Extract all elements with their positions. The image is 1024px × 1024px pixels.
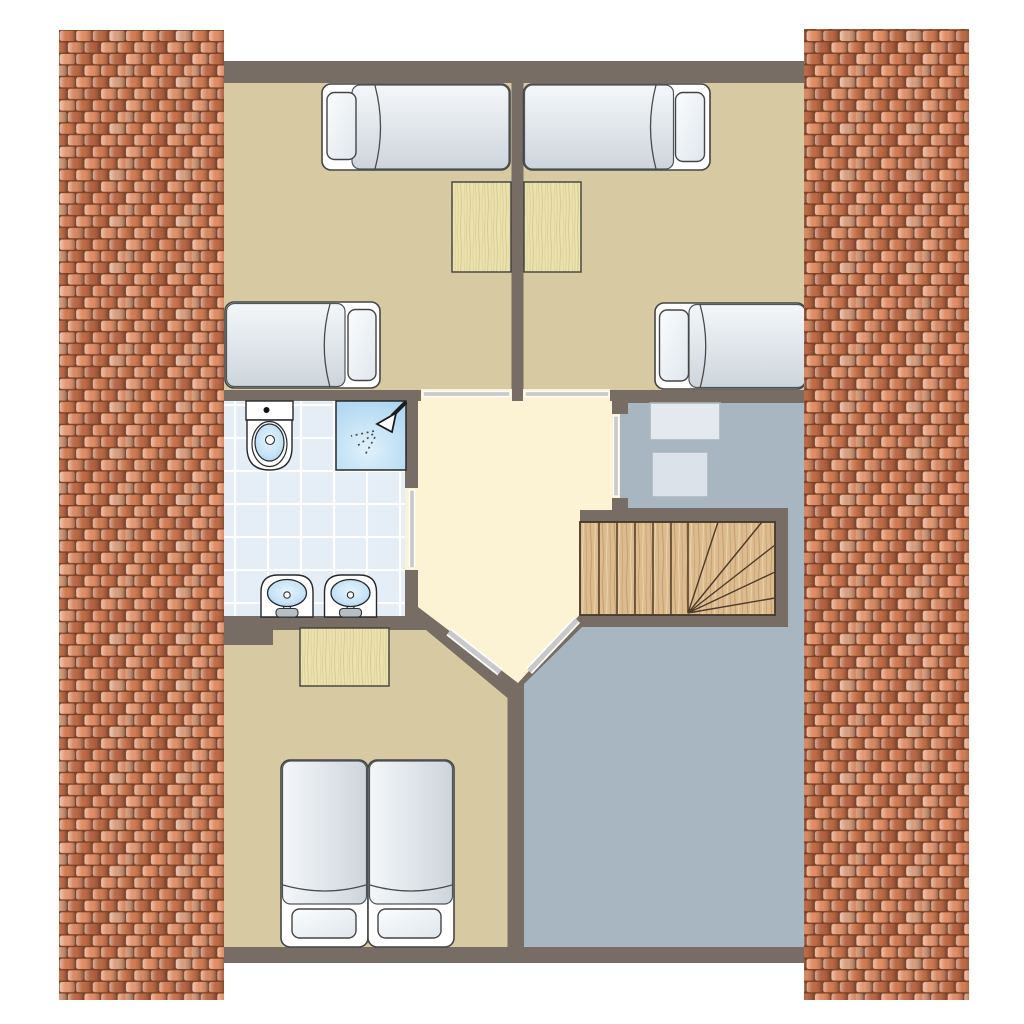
basin-drain — [284, 592, 290, 598]
floorplan-svg — [0, 0, 1024, 1024]
staircase — [580, 522, 775, 615]
door-leaf-storage — [614, 416, 619, 496]
door-leaf-bedroom-top-left — [423, 392, 510, 397]
door-leaf-bathroom — [410, 490, 415, 568]
double-bed-right-half — [368, 760, 454, 947]
basin-faucet — [340, 609, 362, 618]
double-bed — [281, 760, 454, 947]
toilet-tank — [246, 401, 293, 420]
roof-left — [59, 30, 224, 1000]
single-bed-4 — [655, 303, 806, 389]
storage-box-2 — [652, 452, 708, 497]
bed-mattress — [689, 305, 806, 388]
basin-faucet — [276, 609, 298, 618]
toilet — [246, 401, 293, 470]
bed-pillow — [378, 909, 441, 938]
desk-3 — [300, 628, 389, 686]
desk-1 — [452, 182, 511, 272]
floorplan-canvas — [0, 0, 1024, 1024]
roof-right — [804, 29, 969, 1000]
single-bed-2 — [225, 302, 380, 388]
single-bed-3 — [524, 84, 711, 170]
basin-drain — [347, 592, 353, 598]
desk-2 — [524, 182, 581, 272]
double-bed-left-half — [281, 760, 368, 947]
bed-pillow — [676, 93, 705, 162]
washbasin-1 — [261, 575, 313, 617]
door-leaf-bedroom-top-right — [525, 392, 609, 397]
shower — [336, 401, 406, 470]
bed-pillow — [660, 310, 689, 381]
bed-pillow — [327, 93, 356, 160]
bed-mattress — [352, 85, 509, 169]
bed-mattress — [283, 761, 367, 904]
toilet-drain — [266, 436, 275, 445]
bed-mattress — [370, 761, 453, 904]
bed-pillow — [292, 909, 356, 938]
toilet-flush-button — [264, 407, 270, 413]
single-bed-1 — [322, 84, 510, 170]
storage-box-1 — [650, 403, 720, 440]
bed-pillow — [348, 310, 376, 381]
washbasin-2 — [325, 575, 377, 617]
door-opening-storage-attic-side — [620, 414, 628, 498]
